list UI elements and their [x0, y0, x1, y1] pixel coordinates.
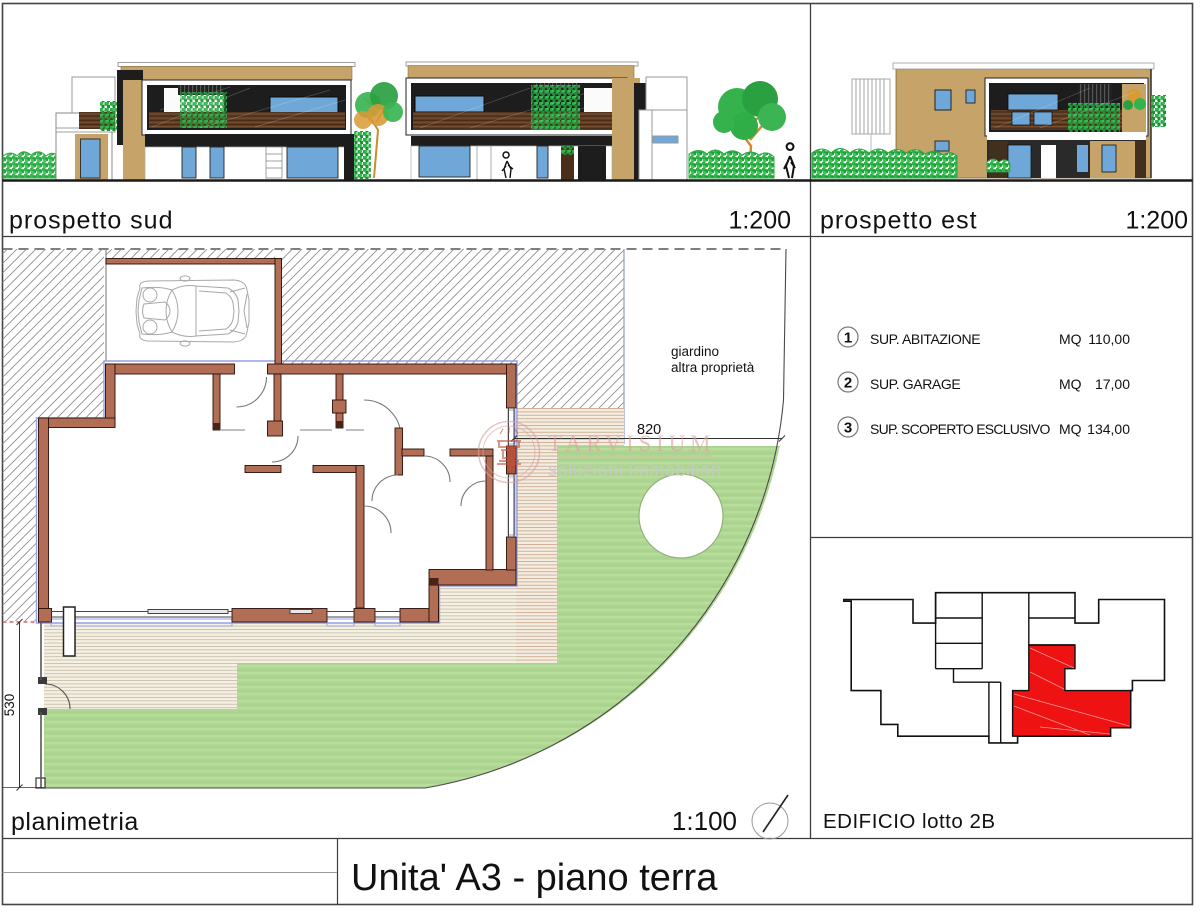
svg-text:1:200: 1:200: [1125, 207, 1188, 235]
svg-text:soluzioni immobiliari: soluzioni immobiliari: [548, 460, 722, 480]
svg-text:MQ: MQ: [1059, 331, 1082, 347]
svg-text:SUP. ABITAZIONE: SUP. ABITAZIONE: [870, 331, 980, 347]
svg-text:1:200: 1:200: [728, 207, 791, 235]
svg-text:prospetto sud: prospetto sud: [9, 207, 174, 235]
svg-text:17,00: 17,00: [1095, 376, 1130, 392]
svg-text:110,00: 110,00: [1088, 331, 1130, 347]
svg-text:MQ: MQ: [1059, 421, 1082, 437]
svg-text:altra proprietà: altra proprietà: [671, 360, 755, 375]
svg-text:prospetto est: prospetto est: [820, 207, 978, 235]
svg-text:134,00: 134,00: [1087, 421, 1130, 437]
svg-text:SUP. SCOPERTO ESCLUSIVO: SUP. SCOPERTO ESCLUSIVO: [870, 421, 1050, 437]
svg-text:TARVISIUM: TARVISIUM: [548, 431, 715, 456]
svg-text:planimetria: planimetria: [11, 808, 139, 836]
svg-text:SUP. GARAGE: SUP. GARAGE: [870, 376, 960, 392]
svg-text:3: 3: [844, 420, 852, 437]
svg-text:giardino: giardino: [671, 344, 719, 359]
svg-text:Unita' A3 - piano terra: Unita' A3 - piano terra: [351, 857, 718, 899]
svg-text:530: 530: [2, 694, 17, 717]
svg-text:1:100: 1:100: [672, 806, 737, 836]
svg-text:2: 2: [844, 375, 852, 392]
svg-text:1: 1: [844, 330, 852, 347]
svg-text:EDIFICIO lotto 2B: EDIFICIO lotto 2B: [823, 810, 996, 833]
svg-text:MQ: MQ: [1059, 376, 1082, 392]
